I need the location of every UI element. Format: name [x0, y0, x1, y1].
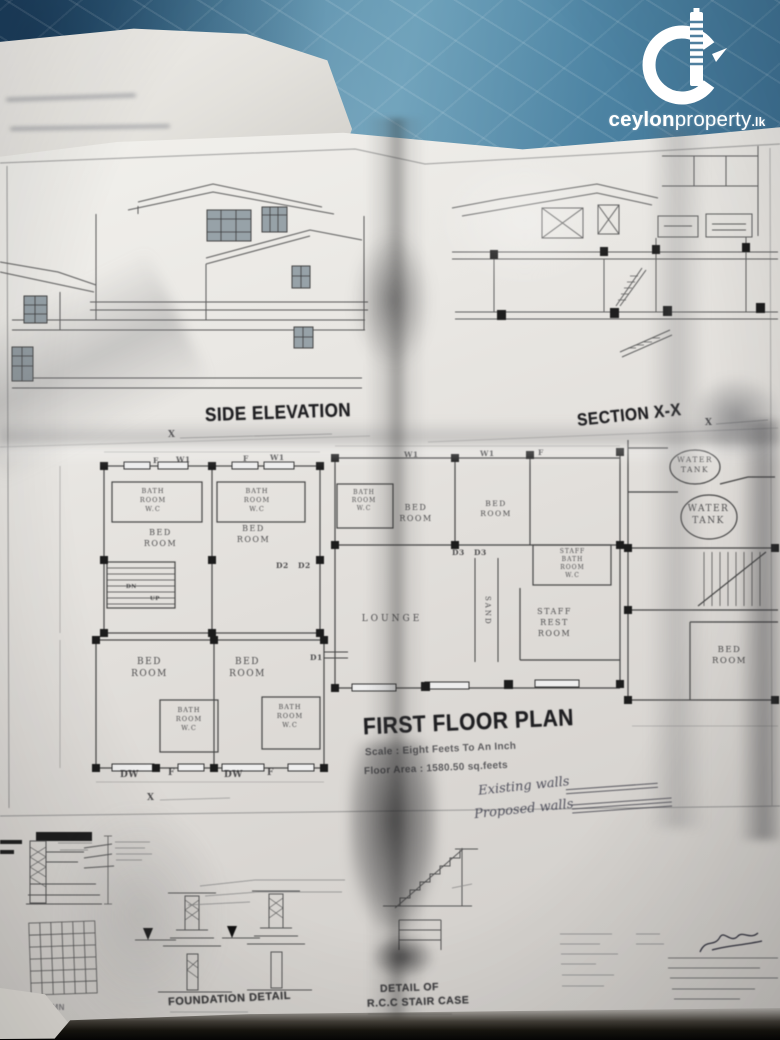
label-line: BED [122, 656, 177, 668]
label-line: BED [220, 656, 275, 668]
blueprint-content: SIDE ELEVATION SECTION X-X FIRST FLOOR P… [0, 0, 780, 1040]
marker-d3: D3 [452, 548, 465, 557]
label-line: ROOM [222, 496, 292, 505]
room-label-bed-room: BEDROOM [702, 645, 757, 668]
label-line: ROOM [220, 668, 275, 680]
marker-dw: DW [120, 770, 139, 780]
room-label-bed-room: BEDROOM [472, 499, 520, 519]
room-label-sand: SAND [482, 596, 491, 626]
label-line: ROOM [226, 535, 281, 546]
marker-up: UP [150, 596, 160, 602]
label-line: ROOM [702, 656, 757, 667]
marker-x-axis: X [705, 418, 712, 428]
room-label-bed-room: BEDROOM [392, 503, 440, 525]
ceylonproperty-watermark: ceylonproperty.lk [596, 6, 778, 134]
label-line: BED [392, 503, 440, 514]
room-label-bath-room-wc: BATHROOMW.C [158, 706, 220, 732]
logo-text-light: property [675, 108, 752, 131]
label-line: W.C [259, 721, 321, 730]
marker-f: F [538, 448, 544, 457]
label-line: BED [472, 499, 520, 509]
label-line: BATH [118, 487, 188, 496]
marker-x-axis: X [168, 430, 175, 440]
marker-x-axis: X [147, 793, 154, 803]
label-line: ROOM [392, 514, 440, 525]
logo-text-bold: ceylon [609, 108, 675, 131]
signature [700, 933, 762, 952]
label-line: W.C [118, 505, 188, 514]
label-line: WATER [671, 455, 719, 465]
side-elevation-drawing [0, 184, 368, 388]
room-label-bath-room-wc: BATHROOMW.C [340, 489, 388, 513]
label-line: ROOM [158, 715, 220, 724]
room-label-bed-room: BEDROOM [133, 528, 188, 550]
label-line: STAFF [527, 607, 582, 618]
label-line: BATH [158, 706, 220, 715]
photo-of-blueprint: SIDE ELEVATION SECTION X-X FIRST FLOOR P… [0, 0, 780, 1040]
room-label-bath-room-wc: BATHROOMW.C [259, 703, 321, 729]
label-line: REST [527, 618, 582, 629]
label-line: BED [133, 528, 188, 539]
label-line: W.C [222, 505, 292, 514]
logo-text-tld: .lk [752, 115, 766, 129]
label-line: BED [702, 645, 757, 656]
label-line: ROOM [133, 539, 188, 550]
label-line: W.C [158, 724, 220, 733]
room-label-bath-room-wc: BATHROOMW.C [222, 487, 292, 513]
label-line: ROOM [545, 564, 600, 572]
marker-dn: DN [126, 584, 137, 590]
room-label-bed-room: BEDROOM [122, 656, 177, 680]
marker-w1: W1 [270, 453, 285, 462]
marker-d3: D3 [474, 548, 487, 557]
label-line: STAFF [545, 548, 600, 556]
marker-f: F [243, 454, 249, 463]
marker-w1: W1 [404, 450, 419, 459]
room-label-staff-rest-room: STAFFRESTROOM [527, 607, 582, 639]
label-line: ROOM [118, 496, 188, 505]
marker-f: F [267, 768, 274, 778]
room-label-lounge: LOUNGE [360, 613, 424, 625]
label-line: W.C [545, 572, 600, 580]
ceylonproperty-logo-text: ceylonproperty.lk [596, 108, 778, 132]
label-line: BATH [259, 703, 321, 712]
label-line: WATER [681, 503, 736, 515]
label-line: BATH [340, 489, 388, 497]
ceylonproperty-logo-icon [634, 8, 744, 108]
marker-f: F [168, 768, 175, 778]
marker-w1: W1 [480, 449, 495, 458]
label-line: ROOM [527, 629, 582, 640]
room-label-bed-room: BEDROOM [220, 656, 275, 680]
room-label-water-tank: WATERTANK [671, 455, 719, 475]
marker-w1: W1 [176, 455, 191, 464]
label-line: TANK [671, 465, 719, 475]
label-line: BED [226, 524, 281, 535]
stair-detail-title-line1: DETAIL OF [380, 981, 439, 995]
label-line: ROOM [472, 509, 520, 519]
marker-d2: D2 [276, 561, 289, 570]
section-xx-drawing [452, 146, 778, 357]
label-line: TANK [681, 515, 736, 527]
room-label-water-tank: WATERTANK [681, 503, 736, 527]
label-line: ROOM [340, 497, 388, 505]
marker-dw: DW [224, 770, 243, 780]
room-label-staff-bath-room-wc: STAFFBATHROOMW.C [545, 548, 600, 580]
blueprint-line-drawing [0, 0, 780, 1040]
room-label-bed-room: BEDROOM [226, 524, 281, 546]
label-line: ROOM [259, 712, 321, 721]
label-line: BATH [222, 487, 292, 496]
marker-d1: D1 [310, 653, 323, 662]
marker-f: F [153, 456, 159, 465]
marker-d2: D2 [298, 561, 311, 570]
label-line: ROOM [122, 668, 177, 680]
label-line: W.C [340, 505, 388, 513]
label-line: BATH [545, 556, 600, 564]
room-label-bath-room-wc: BATHROOMW.C [118, 487, 188, 513]
